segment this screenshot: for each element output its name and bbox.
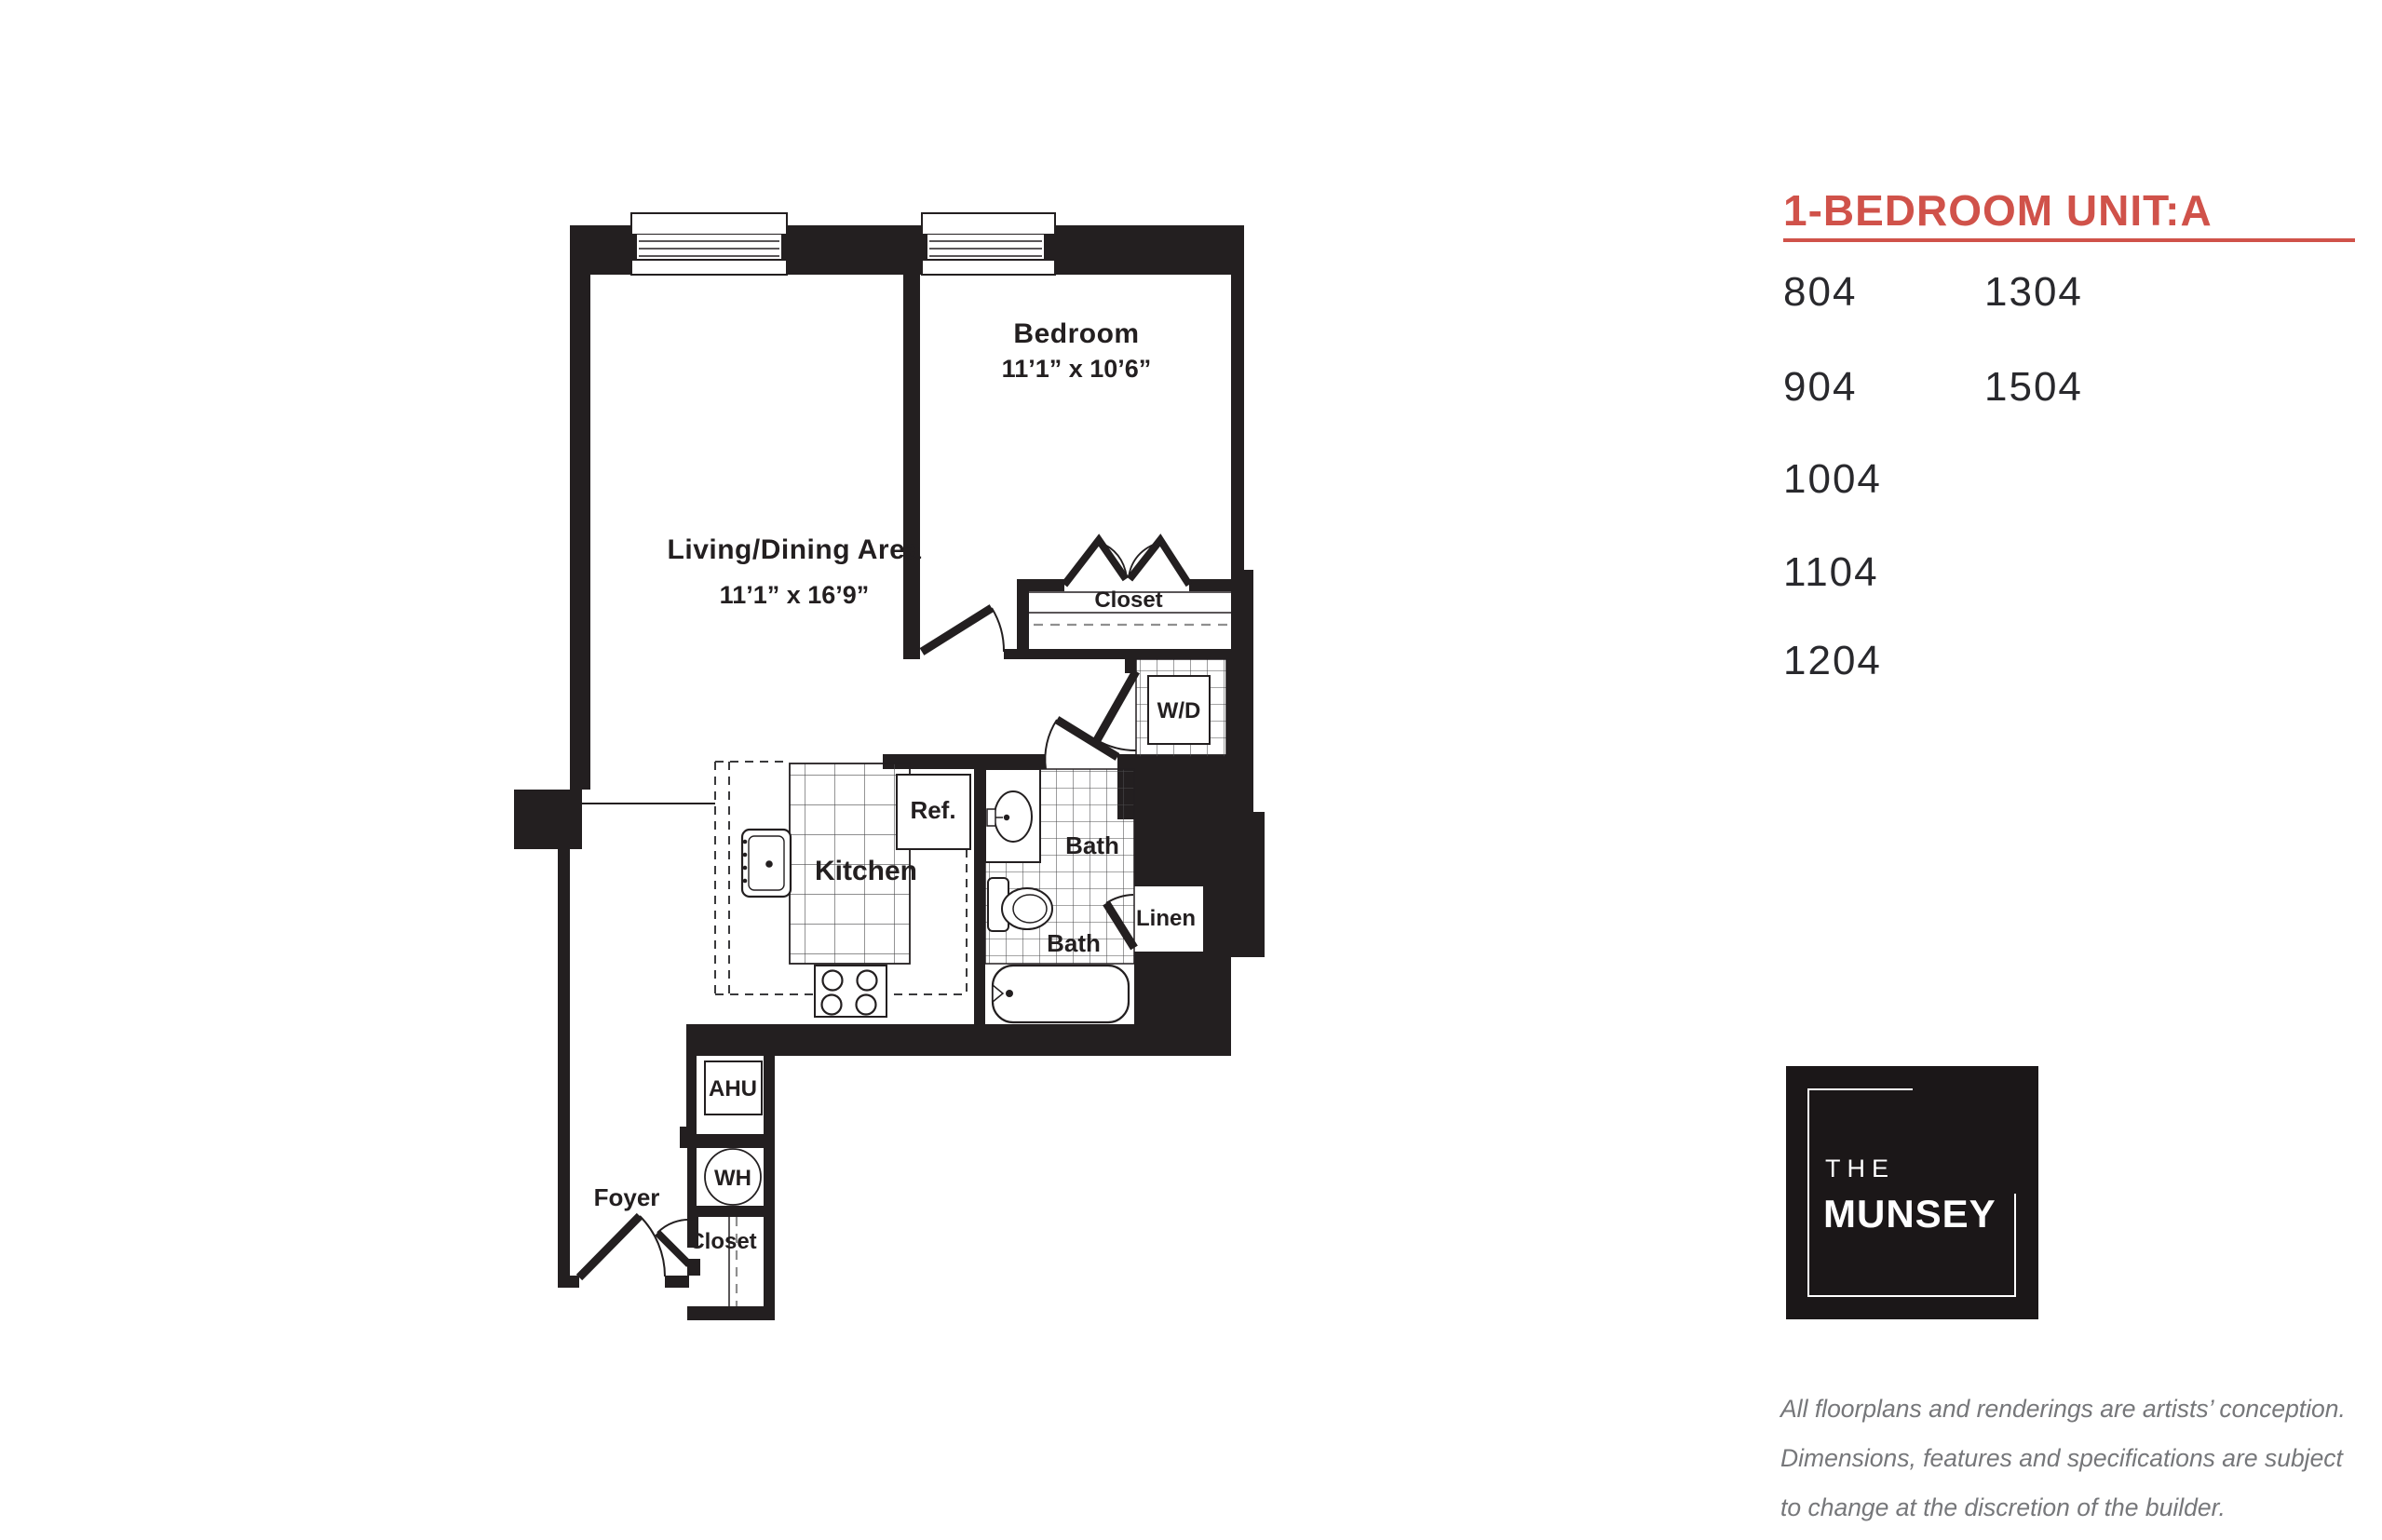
unit-number-1204: 1204: [1783, 641, 1882, 682]
bedroom-dims: 11’1” x 10’6”: [1002, 355, 1152, 383]
bedroom-label: Bedroom: [1013, 318, 1139, 349]
disclaimer-line-2: Dimensions, features and specifications …: [1780, 1434, 2346, 1483]
bath-lower-label: Bath: [1047, 929, 1101, 957]
title-underline: [1783, 238, 2355, 242]
kitchen-sink: [742, 830, 791, 897]
kitchen-label: Kitchen: [815, 856, 917, 886]
logo-border-top: [1807, 1088, 1913, 1090]
unit-number-1004: 1004: [1783, 459, 1882, 500]
wd-label: W/D: [1157, 698, 1201, 723]
ref-label: Ref.: [910, 796, 955, 824]
unit-number-804: 804: [1783, 272, 1857, 313]
logo-text-munsey: MUNSEY: [1823, 1195, 1996, 1234]
unit-number-1104: 1104: [1783, 552, 1879, 593]
entry-door: [579, 1216, 665, 1277]
disclaimer-line-3: to change at the discretion of the build…: [1780, 1483, 2346, 1533]
wh-label: WH: [714, 1166, 751, 1191]
ahu-label: AHU: [709, 1076, 757, 1101]
living-label: Living/Dining Area: [668, 534, 922, 565]
logo-text-the: THE: [1825, 1156, 1895, 1182]
unit-number-1504: 1504: [1984, 367, 2083, 408]
logo-border-right: [2014, 1194, 2016, 1297]
bedroom-door: [922, 608, 1004, 652]
bath-vanity-sink: [985, 769, 1040, 862]
living-window: [631, 213, 787, 275]
logo-border-bottom: [1807, 1295, 2014, 1297]
linen-label: Linen: [1136, 906, 1196, 931]
logo-border-left: [1807, 1088, 1809, 1295]
stove: [815, 966, 886, 1017]
bedroom-closet-bifold-doors: [1064, 540, 1189, 585]
unit-number-1304: 1304: [1984, 272, 2083, 313]
disclaimer-line-1: All floorplans and renderings are artist…: [1780, 1385, 2346, 1434]
living-dims: 11’1” x 16’9”: [720, 581, 870, 609]
disclaimer: All floorplans and renderings are artist…: [1780, 1385, 2346, 1533]
unit-number-904: 904: [1783, 367, 1857, 408]
bathtub: [993, 966, 1129, 1022]
bedroom-window: [922, 213, 1055, 275]
munsey-logo: THE MUNSEY: [1786, 1066, 2038, 1319]
page-title: 1-BEDROOM UNIT:A: [1783, 189, 2213, 232]
bedroom-closet-label: Closet: [1094, 588, 1162, 613]
foyer-closet-label: Closet: [688, 1229, 756, 1254]
bath-upper-label: Bath: [1065, 831, 1119, 859]
page: { "panel": { "title": "1-BEDROOM UNIT:A"…: [0, 0, 2382, 1540]
foyer-label: Foyer: [594, 1183, 660, 1211]
wd-door: [1097, 671, 1136, 750]
